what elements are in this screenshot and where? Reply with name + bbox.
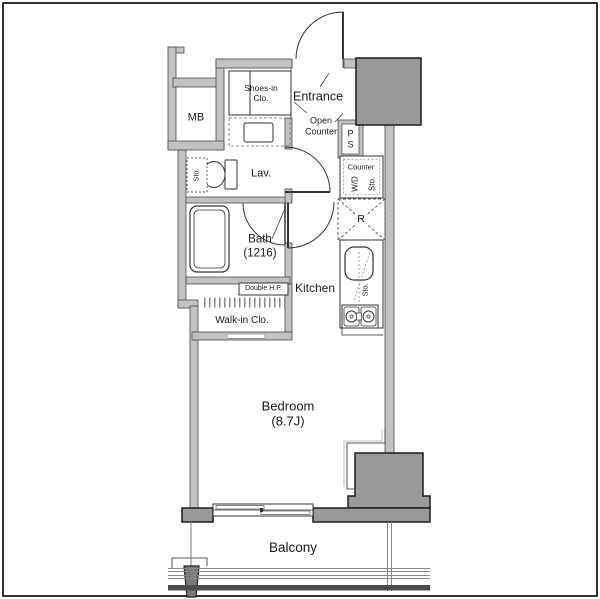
top-right-column — [356, 58, 421, 125]
label-entrance: Entrance — [293, 90, 343, 105]
label-open-counter-line2: Counter — [305, 126, 337, 137]
label-balcony: Balcony — [269, 540, 317, 556]
label-washer-dryer: W/D — [350, 176, 359, 192]
balcony-details — [168, 522, 430, 597]
bathtub — [190, 206, 229, 272]
label-lavatory: Lav. — [251, 168, 271, 181]
closet-sliding-door — [227, 334, 265, 338]
label-shoes-closet: Shoes-in Clo. — [244, 83, 278, 103]
label-double-hanger-pipe: Double H.P. — [245, 285, 282, 293]
hall-door — [288, 202, 334, 248]
label-kitchen-storage: Sto. — [362, 283, 371, 296]
label-counter: Counter — [348, 164, 375, 173]
label-lavatory-storage: Sto. — [193, 168, 202, 181]
label-bedroom-line1: Bedroom — [262, 399, 315, 414]
label-shoes-line1: Shoes-in — [244, 83, 278, 93]
label-kitchen: Kitchen — [295, 281, 335, 295]
drain-pipe — [184, 566, 199, 597]
label-pipe-space: P S — [347, 128, 353, 149]
label-bedroom-line2: (8.7J) — [262, 414, 315, 429]
floor-plan: MB Shoes-in Clo. Entrance Open Counter P… — [0, 0, 600, 599]
kitchen-sink — [345, 247, 373, 280]
balcony-edge-band — [168, 585, 430, 591]
entrance-door — [296, 12, 343, 59]
label-refrigerator-text: R — [355, 213, 367, 225]
label-mb: MB — [188, 112, 205, 125]
label-shoes-line2: Clo. — [244, 93, 278, 103]
label-refrigerator: R — [355, 213, 367, 225]
label-bath-line1: Bath — [243, 233, 276, 247]
balcony-wall-left — [182, 508, 213, 522]
label-bath: Bath (1216) — [243, 233, 276, 260]
label-ps-line1: P — [347, 128, 353, 139]
lavatory-door — [285, 147, 330, 192]
label-open-counter-line1: Open — [305, 115, 337, 126]
label-open-counter: Open Counter — [305, 115, 337, 136]
label-ps-line2: S — [347, 139, 353, 150]
bottom-right-column — [348, 453, 430, 508]
toilet — [203, 160, 237, 189]
balcony-wall-right — [313, 508, 430, 522]
bedroom-window — [213, 504, 313, 516]
label-walk-in-closet: Walk-in Clo. — [215, 315, 269, 327]
label-bath-line2: (1216) — [243, 247, 276, 261]
label-bedroom: Bedroom (8.7J) — [262, 399, 315, 430]
label-counter-storage: Sto. — [367, 177, 376, 191]
vanity-sink — [229, 118, 290, 146]
balcony-railing — [168, 569, 430, 579]
stove — [342, 305, 378, 328]
